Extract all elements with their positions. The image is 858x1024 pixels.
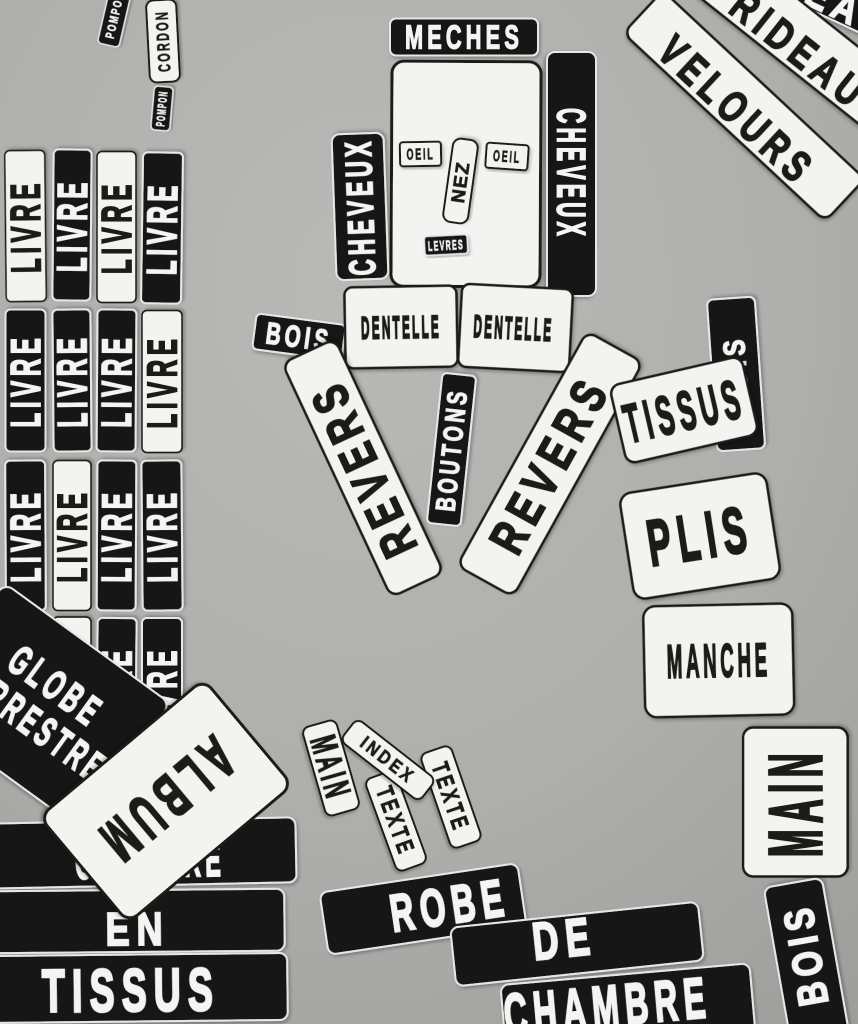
svg-text:OEIL: OEIL	[492, 148, 521, 167]
svg-text:LIVRE: LIVRE	[93, 180, 140, 274]
svg-text:LIVRE: LIVRE	[48, 178, 96, 272]
svg-text:DE: DE	[530, 907, 600, 972]
svg-text:DENTELLE: DENTELLE	[473, 308, 555, 348]
svg-text:LIVRE: LIVRE	[138, 488, 186, 582]
svg-text:LIVRE: LIVRE	[49, 489, 96, 583]
svg-text:TISSUS: TISSUS	[42, 955, 221, 1024]
svg-text:LIVRE: LIVRE	[48, 333, 96, 427]
svg-text:CHEVEUX: CHEVEUX	[549, 108, 594, 240]
svg-text:MAIN: MAIN	[753, 747, 837, 857]
svg-text:LIVRE: LIVRE	[2, 179, 50, 273]
svg-text:LIVRE: LIVRE	[93, 333, 141, 427]
svg-text:MECHES: MECHES	[405, 20, 523, 57]
svg-text:MANCHE: MANCHE	[666, 634, 771, 689]
svg-text:LIVRE: LIVRE	[138, 181, 186, 276]
svg-text:CHEVEUX: CHEVEUX	[337, 137, 384, 276]
svg-text:OEIL: OEIL	[406, 146, 434, 163]
svg-text:LIVRE: LIVRE	[93, 488, 140, 582]
svg-text:LIVRE: LIVRE	[2, 334, 49, 428]
svg-text:LEVRES: LEVRES	[428, 237, 465, 254]
svg-text:CORDON: CORDON	[151, 10, 174, 73]
svg-text:LIVRE: LIVRE	[139, 335, 186, 429]
svg-text:DENTELLE: DENTELLE	[361, 308, 442, 345]
svg-text:LIVRE: LIVRE	[2, 488, 49, 582]
